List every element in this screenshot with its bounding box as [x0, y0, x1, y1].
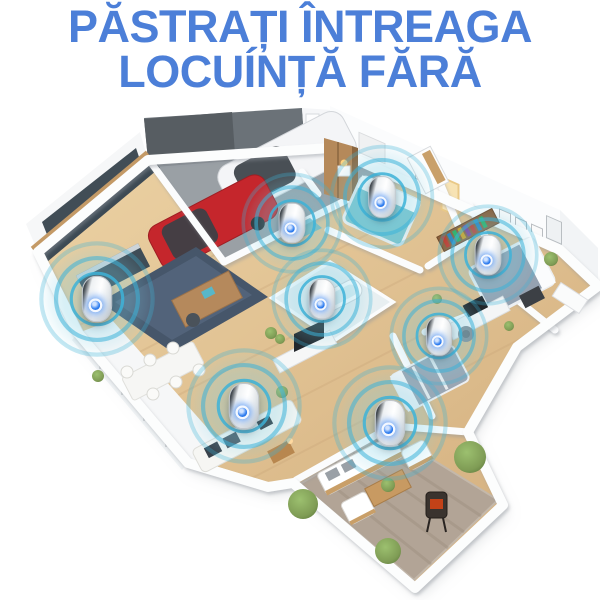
bush	[288, 489, 318, 519]
chair	[193, 364, 205, 376]
chair	[121, 366, 133, 378]
chair	[167, 342, 179, 354]
plant	[92, 370, 104, 382]
chair	[147, 388, 159, 400]
bush	[375, 538, 401, 564]
plant	[544, 252, 558, 266]
plant	[276, 386, 288, 398]
plant	[432, 294, 442, 304]
chair	[170, 376, 182, 388]
lamp	[287, 438, 293, 444]
headline-line-2: LOCUÍNȚĂ FĂRĂ	[0, 49, 600, 94]
plant	[504, 321, 514, 331]
table-plant	[381, 478, 395, 492]
headline: PĂSTRAȚI ÎNTREAGA LOCUÍNȚĂ FĂRĂ	[0, 4, 600, 94]
nightstand	[338, 166, 350, 176]
lamp	[341, 160, 348, 167]
desk-chair	[186, 313, 200, 327]
chair	[144, 354, 156, 366]
headline-line-1: PĂSTRAȚI ÎNTREAGA	[0, 4, 600, 49]
bush	[454, 441, 486, 473]
plant	[275, 334, 285, 344]
plant	[265, 327, 277, 339]
marketing-image: PĂSTRAȚI ÎNTREAGA LOCUÍNȚĂ FĂRĂ	[0, 0, 600, 600]
